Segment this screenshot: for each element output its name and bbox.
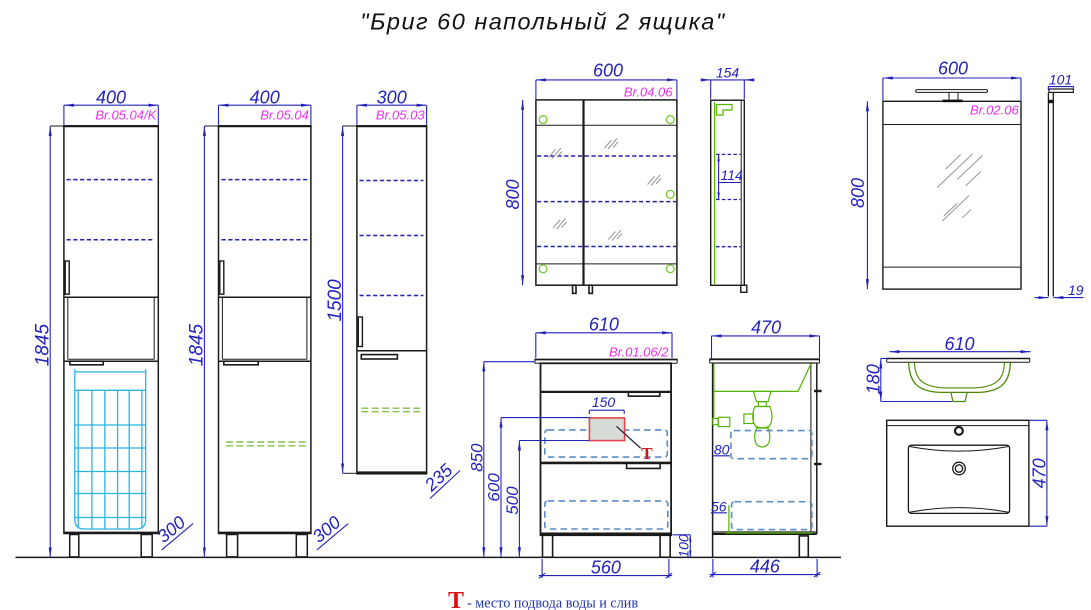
svg-text:560: 560	[591, 558, 621, 578]
svg-text:610: 610	[589, 314, 619, 334]
svg-text:101: 101	[1049, 71, 1072, 87]
svg-text:470: 470	[1029, 458, 1049, 488]
svg-text:Т: Т	[448, 588, 464, 610]
svg-text:1845: 1845	[32, 323, 53, 366]
svg-text:Br.05.03: Br.05.03	[376, 107, 425, 122]
svg-text:1845: 1845	[187, 323, 208, 366]
svg-text:56: 56	[711, 499, 727, 515]
svg-text:850: 850	[467, 443, 486, 472]
svg-text:19: 19	[1068, 282, 1084, 298]
svg-text:- место подвода воды и слив: - место подвода воды и слив	[467, 596, 638, 610]
svg-text:800: 800	[848, 178, 868, 208]
svg-text:610: 610	[944, 334, 974, 354]
svg-text:600: 600	[485, 473, 504, 502]
svg-text:1500: 1500	[325, 279, 346, 322]
svg-text:500: 500	[503, 486, 522, 515]
svg-text:800: 800	[503, 179, 523, 209]
svg-text:"Бриг 60 напольный 2 ящика": "Бриг 60 напольный 2 ящика"	[360, 9, 726, 35]
svg-text:Br.05.04/K: Br.05.04/K	[95, 107, 157, 122]
svg-text:400: 400	[250, 87, 280, 107]
svg-text:600: 600	[938, 59, 968, 79]
svg-text:600: 600	[593, 61, 623, 81]
svg-text:Br.05.04: Br.05.04	[260, 107, 309, 122]
svg-text:154: 154	[716, 64, 740, 80]
svg-text:Br.02.06: Br.02.06	[970, 103, 1019, 118]
svg-text:400: 400	[96, 87, 126, 107]
svg-text:150: 150	[592, 394, 616, 410]
svg-text:100: 100	[675, 534, 691, 558]
svg-text:446: 446	[750, 557, 781, 577]
svg-text:114: 114	[721, 167, 744, 183]
svg-text:470: 470	[751, 318, 781, 338]
svg-text:Т: Т	[641, 444, 653, 463]
svg-text:80: 80	[714, 442, 730, 458]
svg-text:Br.01.06/2: Br.01.06/2	[609, 345, 669, 360]
svg-text:300: 300	[377, 87, 407, 107]
svg-text:Br.04.06: Br.04.06	[624, 84, 673, 99]
svg-text:180: 180	[864, 364, 884, 394]
